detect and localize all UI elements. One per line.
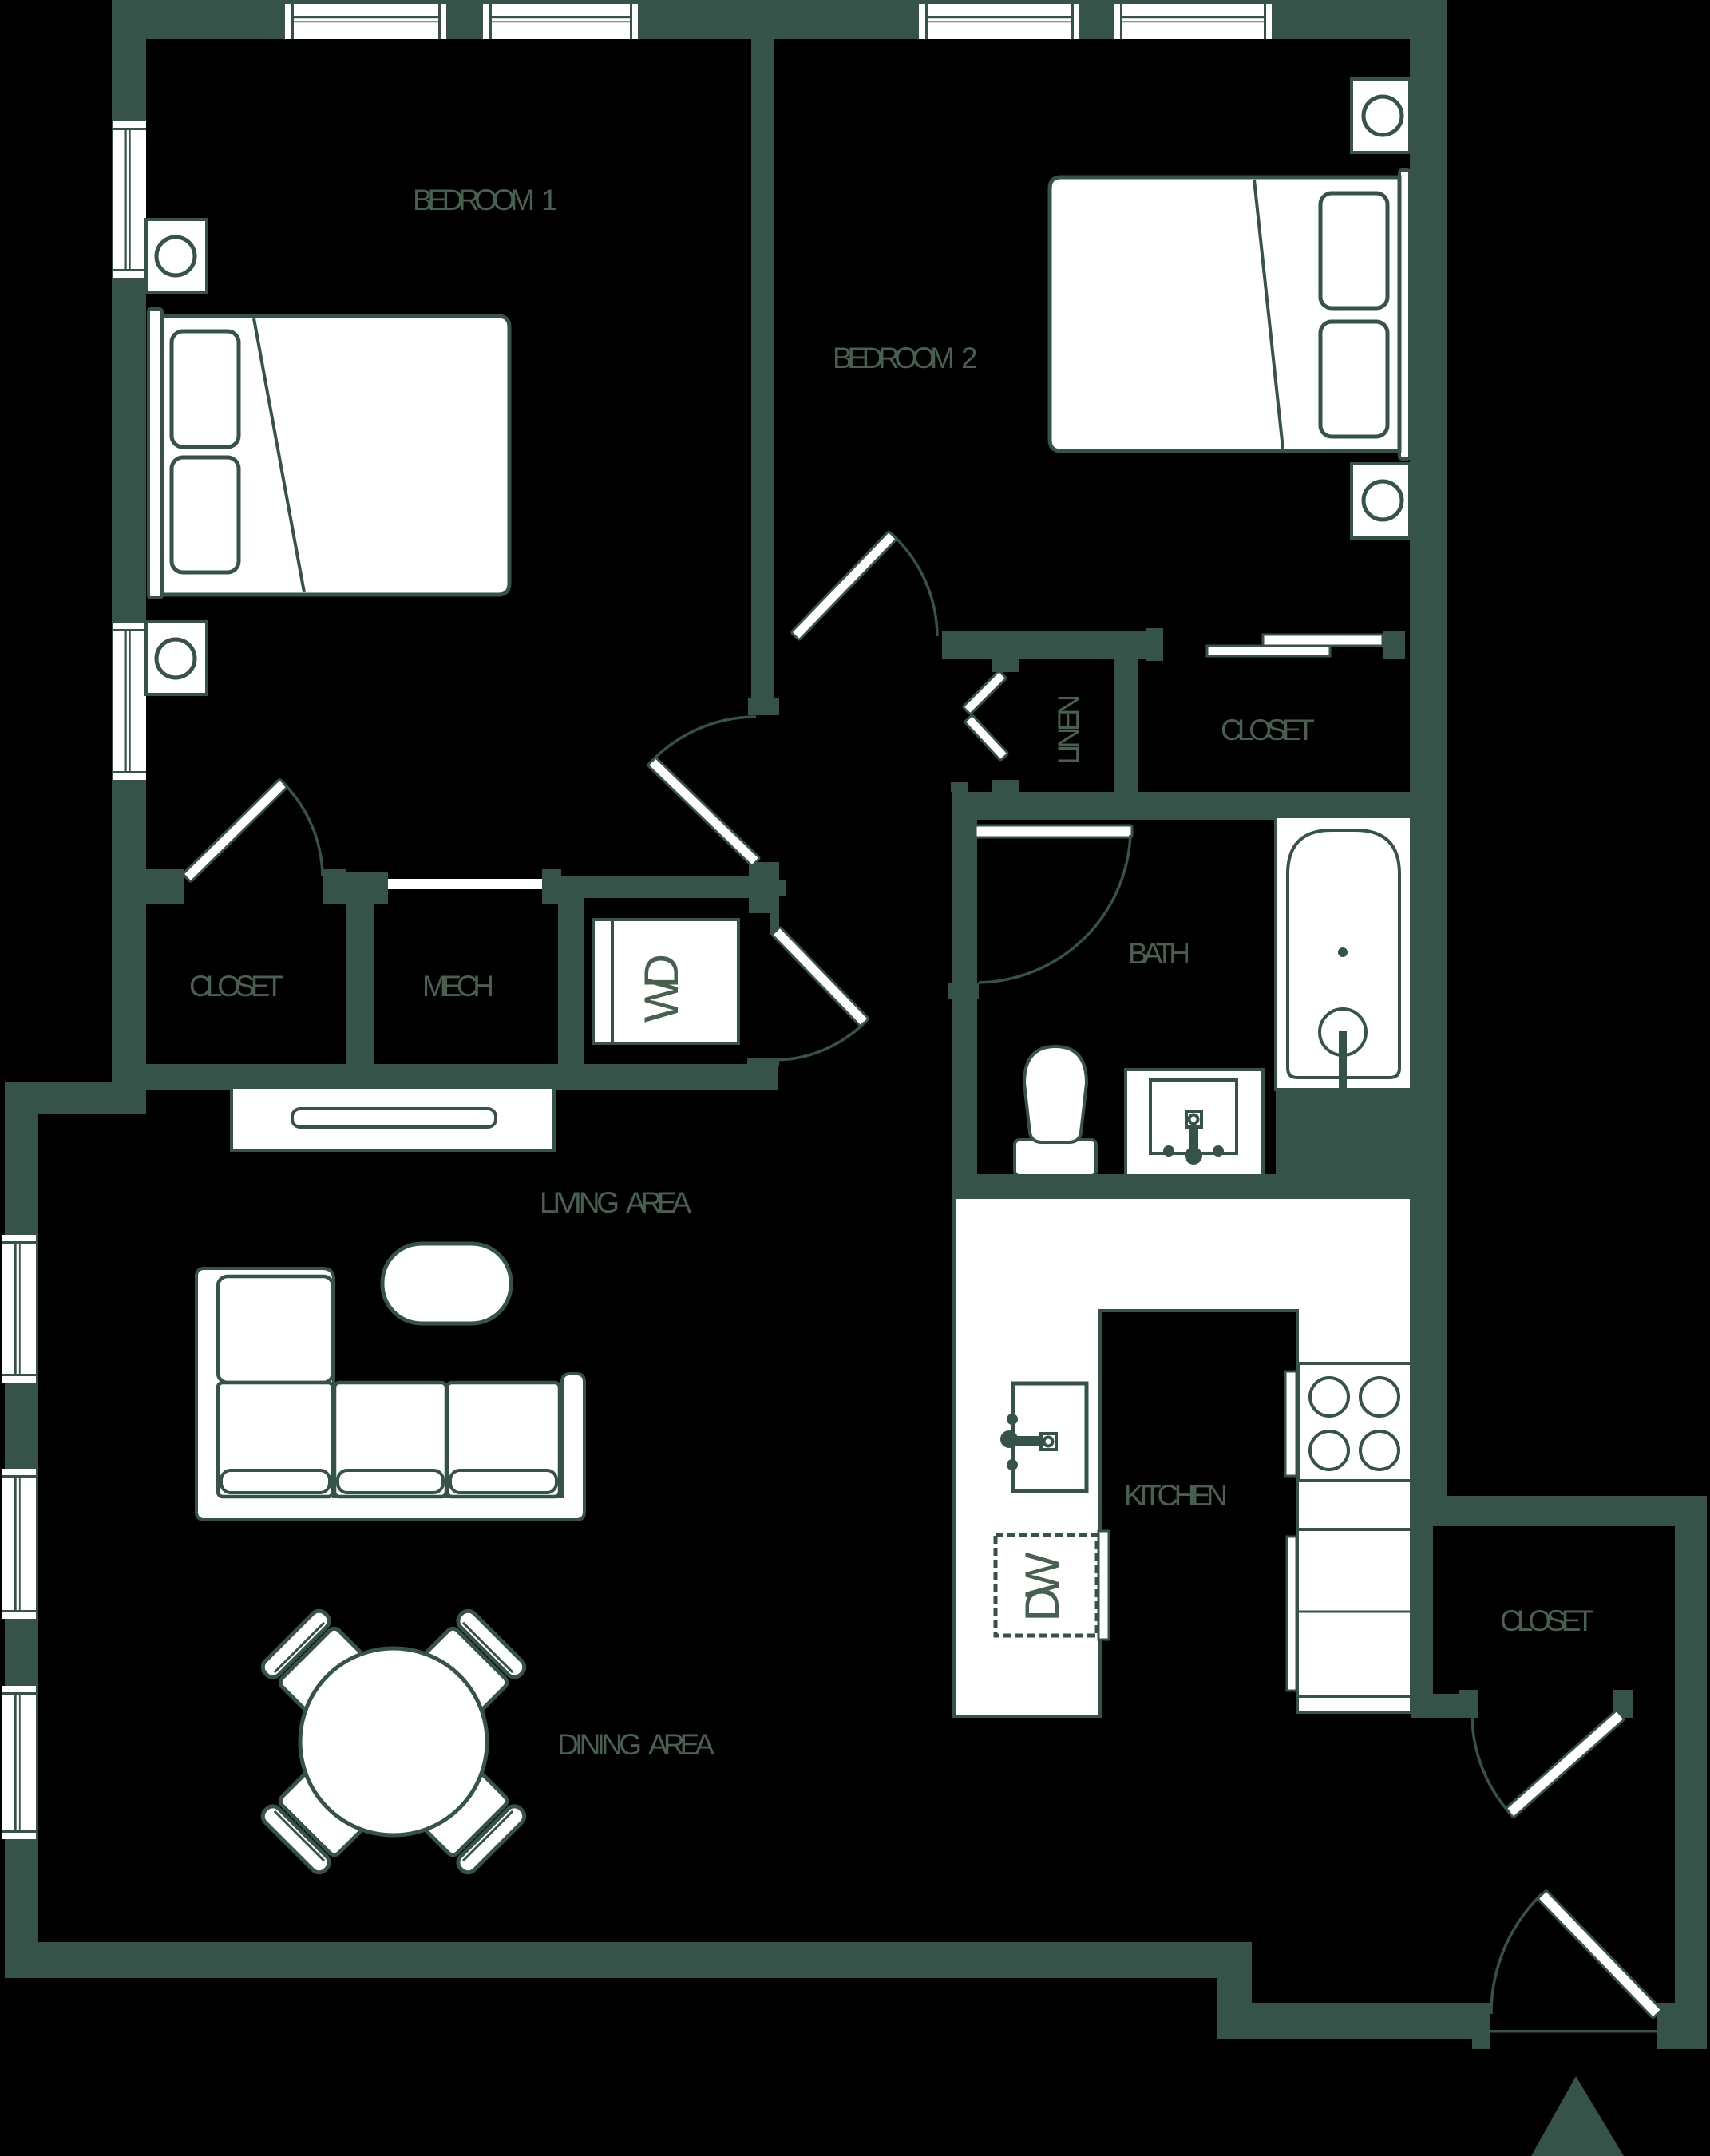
svg-text:BATH: BATH xyxy=(1128,937,1190,970)
svg-text:DW: DW xyxy=(1015,1552,1069,1621)
svg-text:CLOSET: CLOSET xyxy=(1221,714,1315,746)
svg-text:LINEN: LINEN xyxy=(1052,694,1085,765)
svg-text:AREA: AREA xyxy=(648,1728,714,1761)
svg-text:LIVING: LIVING xyxy=(540,1186,619,1219)
svg-text:WD: WD xyxy=(635,954,688,1023)
svg-text:BEDROOM: BEDROOM xyxy=(833,342,955,374)
svg-text:DINING: DINING xyxy=(557,1728,642,1761)
svg-text:AREA: AREA xyxy=(626,1186,691,1219)
svg-text:CLOSET: CLOSET xyxy=(1500,1604,1594,1637)
svg-text:MECH: MECH xyxy=(422,970,494,1003)
svg-text:BEDROOM: BEDROOM xyxy=(413,184,535,216)
svg-text:CLOSET: CLOSET xyxy=(189,970,283,1003)
svg-text:KITCHEN: KITCHEN xyxy=(1124,1479,1228,1512)
svg-text:1: 1 xyxy=(541,184,558,216)
svg-text:2: 2 xyxy=(961,342,978,374)
